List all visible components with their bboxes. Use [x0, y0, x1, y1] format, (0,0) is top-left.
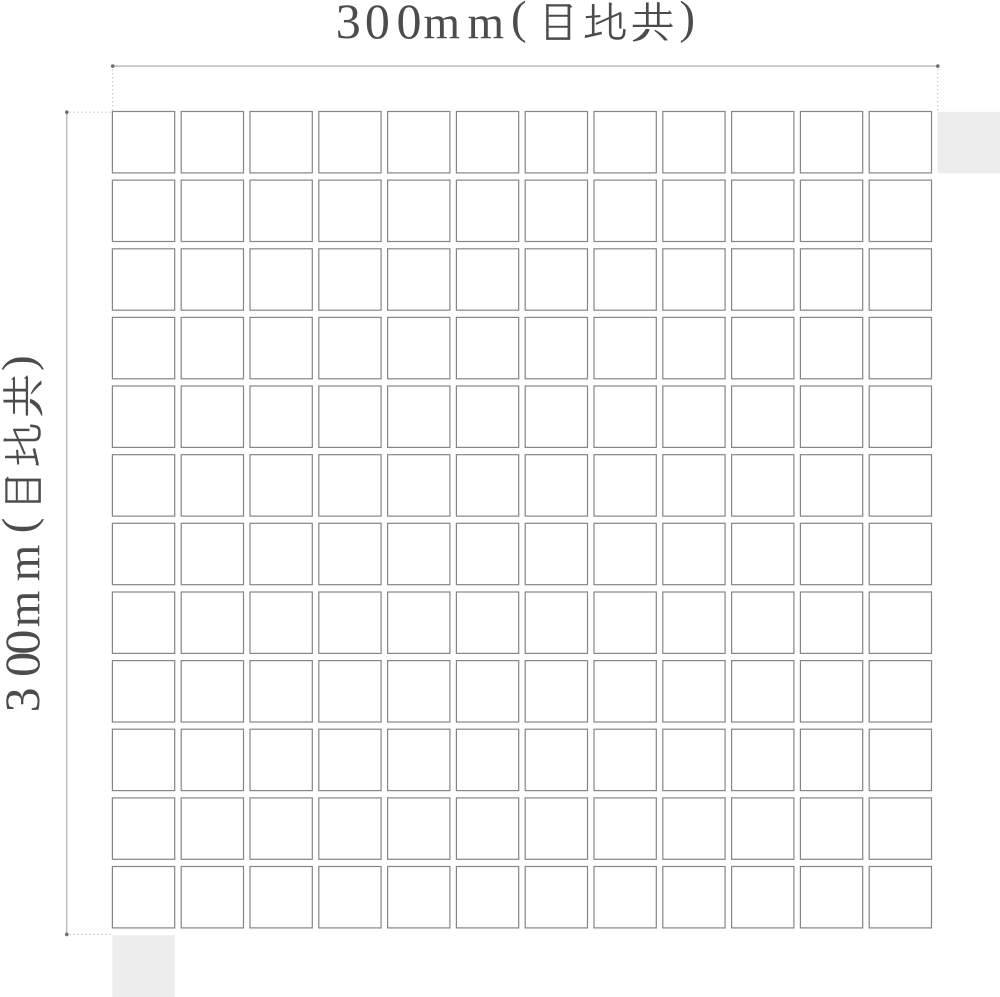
svg-text:m: m [0, 591, 50, 628]
svg-text:0: 0 [0, 652, 50, 677]
svg-text:): ) [679, 0, 695, 44]
svg-text:m: m [468, 0, 505, 49]
svg-text:3: 3 [0, 687, 50, 712]
svg-text:m: m [0, 545, 50, 582]
svg-text:m: m [424, 0, 461, 49]
svg-text:0: 0 [0, 630, 50, 655]
svg-text:(: ( [511, 0, 527, 44]
svg-text:0: 0 [365, 0, 390, 49]
svg-text:): ) [0, 355, 45, 371]
svg-text:3: 3 [336, 0, 361, 49]
svg-text:(: ( [0, 518, 45, 534]
svg-text:0: 0 [397, 0, 422, 49]
